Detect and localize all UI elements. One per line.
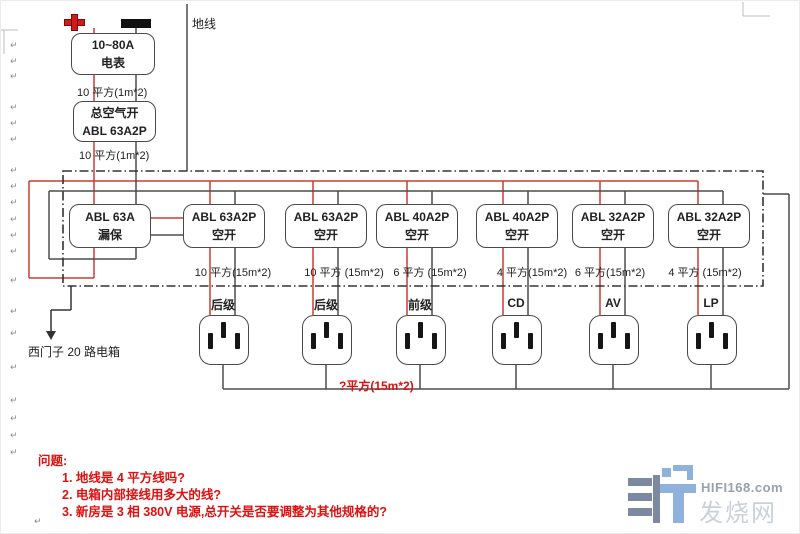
watermark-site: 发烧网 — [699, 493, 777, 528]
question-item: 2. 电箱内部接线用多大的线? — [62, 487, 387, 504]
live-wire-plus-icon — [64, 14, 85, 31]
paragraph-mark: ↵ — [10, 103, 18, 112]
paragraph-mark: ↵ — [10, 231, 18, 240]
switch-wire-label: 10 平方(1m*2) — [79, 147, 149, 163]
question-item: 3. 新房是 3 相 380V 电源,总开关是否要调整为其他规格的? — [62, 504, 387, 521]
neutral-wire-bar-icon — [121, 19, 151, 28]
main-switch-name: 总空气开 — [90, 104, 138, 122]
breaker-model: ABL 40A2P — [385, 208, 449, 226]
watermark-logo-icon — [653, 475, 660, 523]
breaker-3: ABL 40A2P 空开 — [376, 204, 458, 248]
paragraph-mark: ↵ — [10, 329, 18, 338]
main-switch-box: 总空气开 ABL 63A2P — [73, 101, 156, 142]
breaker-1: ABL 63A2P 空开 — [183, 204, 265, 248]
breaker-model: ABL 63A2P — [294, 208, 358, 226]
paragraph-mark: ↵ — [10, 414, 18, 423]
panel-arrow — [51, 286, 71, 332]
socket-outlet — [199, 315, 249, 365]
paragraph-mark: ↵ — [10, 363, 18, 372]
socket-label: 前级 — [408, 296, 432, 313]
paragraph-mark: ↵ — [10, 166, 18, 175]
paragraph-mark: ↵ — [10, 448, 18, 457]
socket-outlet — [589, 315, 639, 365]
breaker-wire-label: 4 平方(15m*2) — [497, 264, 567, 280]
breaker-type: 空开 — [601, 226, 625, 244]
paragraph-mark: ↵ — [10, 396, 18, 405]
watermark: HIFI168.com 发烧网 — [621, 453, 800, 531]
breaker-model: ABL 63A — [85, 208, 135, 226]
breaker-2: ABL 63A2P 空开 — [285, 204, 367, 248]
meter-wire-label: 10 平方(1m*2) — [77, 84, 147, 100]
meter-rating: 10~80A — [92, 36, 134, 54]
breaker-type: 漏保 — [98, 226, 122, 244]
questions-block: 问题: 1. 地线是 4 平方线吗? 2. 电箱内部接线用多大的线? 3. 新房… — [38, 453, 387, 521]
questions-title: 问题: — [38, 453, 387, 470]
breaker-wire-label: 4 平方 (15m*2) — [668, 264, 741, 280]
socket-label: CD — [507, 296, 524, 310]
breaker-type: 空开 — [405, 226, 429, 244]
meter-box: 10~80A 电表 — [71, 33, 155, 75]
socket-bus-wire-label: ?平方(15m*2) — [339, 377, 414, 394]
socket-outlet — [492, 315, 542, 365]
breaker-wire-label: 6 平方 (15m*2) — [393, 264, 466, 280]
breaker-type: 空开 — [697, 226, 721, 244]
panel-arrowhead — [46, 331, 56, 340]
breaker-4: ABL 40A2P 空开 — [476, 204, 558, 248]
paragraph-mark: ↵ — [10, 431, 18, 440]
socket-label: LP — [703, 296, 718, 310]
paragraph-mark: ↵ — [10, 57, 18, 66]
breaker-model: ABL 40A2P — [485, 208, 549, 226]
socket-label: 后级 — [211, 296, 235, 313]
paragraph-mark: ↵ — [10, 72, 18, 81]
paragraph-mark: ↵ — [34, 517, 42, 526]
socket-outlet — [687, 315, 737, 365]
breaker-5: ABL 32A2P 空开 — [572, 204, 654, 248]
socket-outlet — [396, 315, 446, 365]
breaker-type: 空开 — [314, 226, 338, 244]
paragraph-mark: ↵ — [10, 182, 18, 191]
main-switch-model: ABL 63A2P — [82, 122, 146, 140]
socket-label: 后级 — [314, 296, 338, 313]
breaker-type: 空开 — [505, 226, 529, 244]
paragraph-mark: ↵ — [10, 135, 18, 144]
paragraph-mark: ↵ — [10, 215, 18, 224]
document-page: 地线 10 平方(1m*2) 10 平方(1m*2) 西门子 20 路电箱 ?平… — [0, 0, 800, 534]
breaker-wire-label: 6 平方(15m*2) — [575, 264, 645, 280]
breaker-model: ABL 63A2P — [192, 208, 256, 226]
breaker-wire-label: 10 平方(15m*2) — [195, 264, 271, 280]
breaker-wire-label: 10 平方 (15m*2) — [304, 264, 383, 280]
paragraph-mark: ↵ — [10, 119, 18, 128]
paragraph-mark: ↵ — [10, 41, 18, 50]
breaker-model: ABL 32A2P — [581, 208, 645, 226]
socket-outlet — [302, 315, 352, 365]
breaker-6: ABL 32A2P 空开 — [668, 204, 750, 248]
question-item: 1. 地线是 4 平方线吗? — [62, 470, 387, 487]
breaker-type: 空开 — [212, 226, 236, 244]
paragraph-mark: ↵ — [10, 247, 18, 256]
ground-wire-label: 地线 — [192, 15, 216, 32]
paragraph-mark: ↵ — [10, 276, 18, 285]
meter-name: 电表 — [101, 54, 125, 72]
paragraph-mark: ↵ — [10, 198, 18, 207]
socket-label: AV — [605, 296, 621, 310]
paragraph-mark: ↵ — [10, 307, 18, 316]
breaker-model: ABL 32A2P — [677, 208, 741, 226]
breaker-rcd: ABL 63A 漏保 — [69, 204, 151, 248]
panel-note: 西门子 20 路电箱 — [28, 343, 120, 360]
